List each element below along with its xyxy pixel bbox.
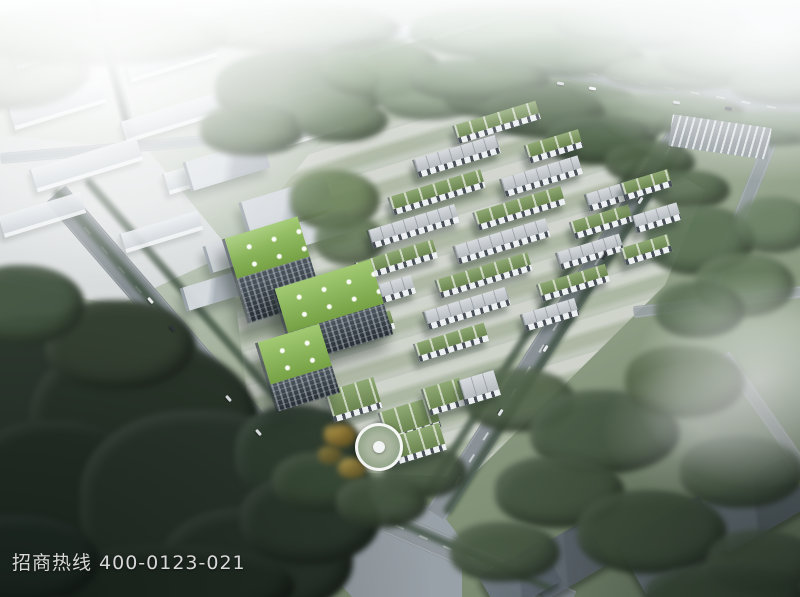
circular-plaza [355, 423, 403, 471]
car [725, 106, 732, 110]
car [169, 325, 176, 332]
aerial-site-rendering: 招商热线 400-0123-021 [0, 0, 800, 597]
car [601, 253, 607, 261]
hotline-text: 招商热线 400-0123-021 [12, 548, 246, 575]
car [589, 86, 596, 90]
car [255, 429, 262, 436]
cars-layer [0, 0, 800, 597]
car [225, 395, 232, 402]
car [542, 345, 548, 353]
car [557, 81, 564, 85]
car [673, 100, 680, 104]
car [637, 197, 643, 205]
car [147, 297, 154, 304]
car [497, 409, 503, 417]
